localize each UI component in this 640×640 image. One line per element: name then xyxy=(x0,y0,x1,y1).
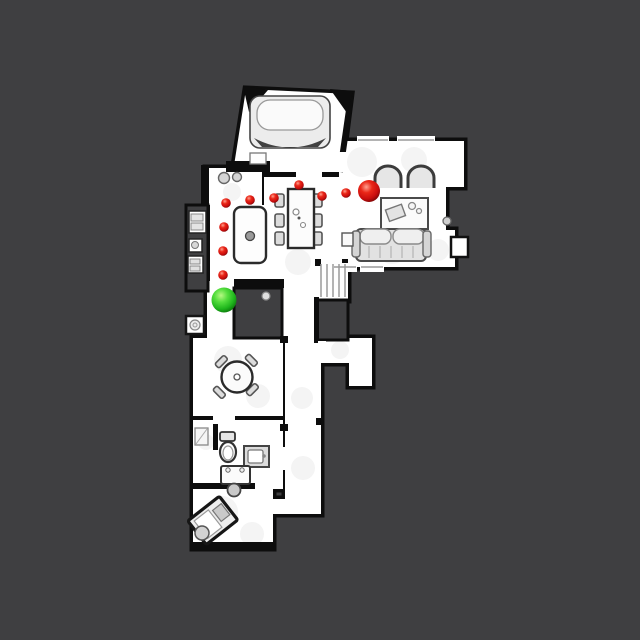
dining-table xyxy=(275,189,322,248)
floorplan-map xyxy=(0,0,640,640)
waypoint-marker xyxy=(317,191,327,201)
toilet xyxy=(220,432,236,462)
chair xyxy=(195,526,209,540)
bench xyxy=(250,153,266,164)
waypoint-marker xyxy=(245,195,255,205)
goal-marker xyxy=(358,180,380,202)
armchair xyxy=(408,166,434,188)
sink-vanity xyxy=(244,446,269,467)
waypoint-marker xyxy=(294,180,304,190)
stairwell-void xyxy=(317,300,348,340)
waypoint-marker xyxy=(341,188,351,198)
side-table xyxy=(342,233,353,246)
coffee-table xyxy=(381,198,428,229)
waypoint-marker xyxy=(269,193,279,203)
closet-column xyxy=(186,205,208,291)
bed xyxy=(250,96,330,148)
sofa xyxy=(352,229,431,261)
waypoint-marker xyxy=(218,246,228,256)
waypoint-marker xyxy=(218,270,228,280)
desk-chair xyxy=(228,484,241,497)
cabinet xyxy=(195,428,208,445)
waypoint-marker xyxy=(221,198,231,208)
armchair xyxy=(375,166,401,188)
fan-icon xyxy=(262,292,270,300)
void-center xyxy=(234,288,282,338)
waypoint-marker xyxy=(219,222,229,232)
window-box xyxy=(451,237,468,257)
kitchen-island xyxy=(234,207,266,263)
wall-item xyxy=(443,217,451,225)
laundry-niche xyxy=(186,316,204,334)
start-marker xyxy=(212,288,237,313)
